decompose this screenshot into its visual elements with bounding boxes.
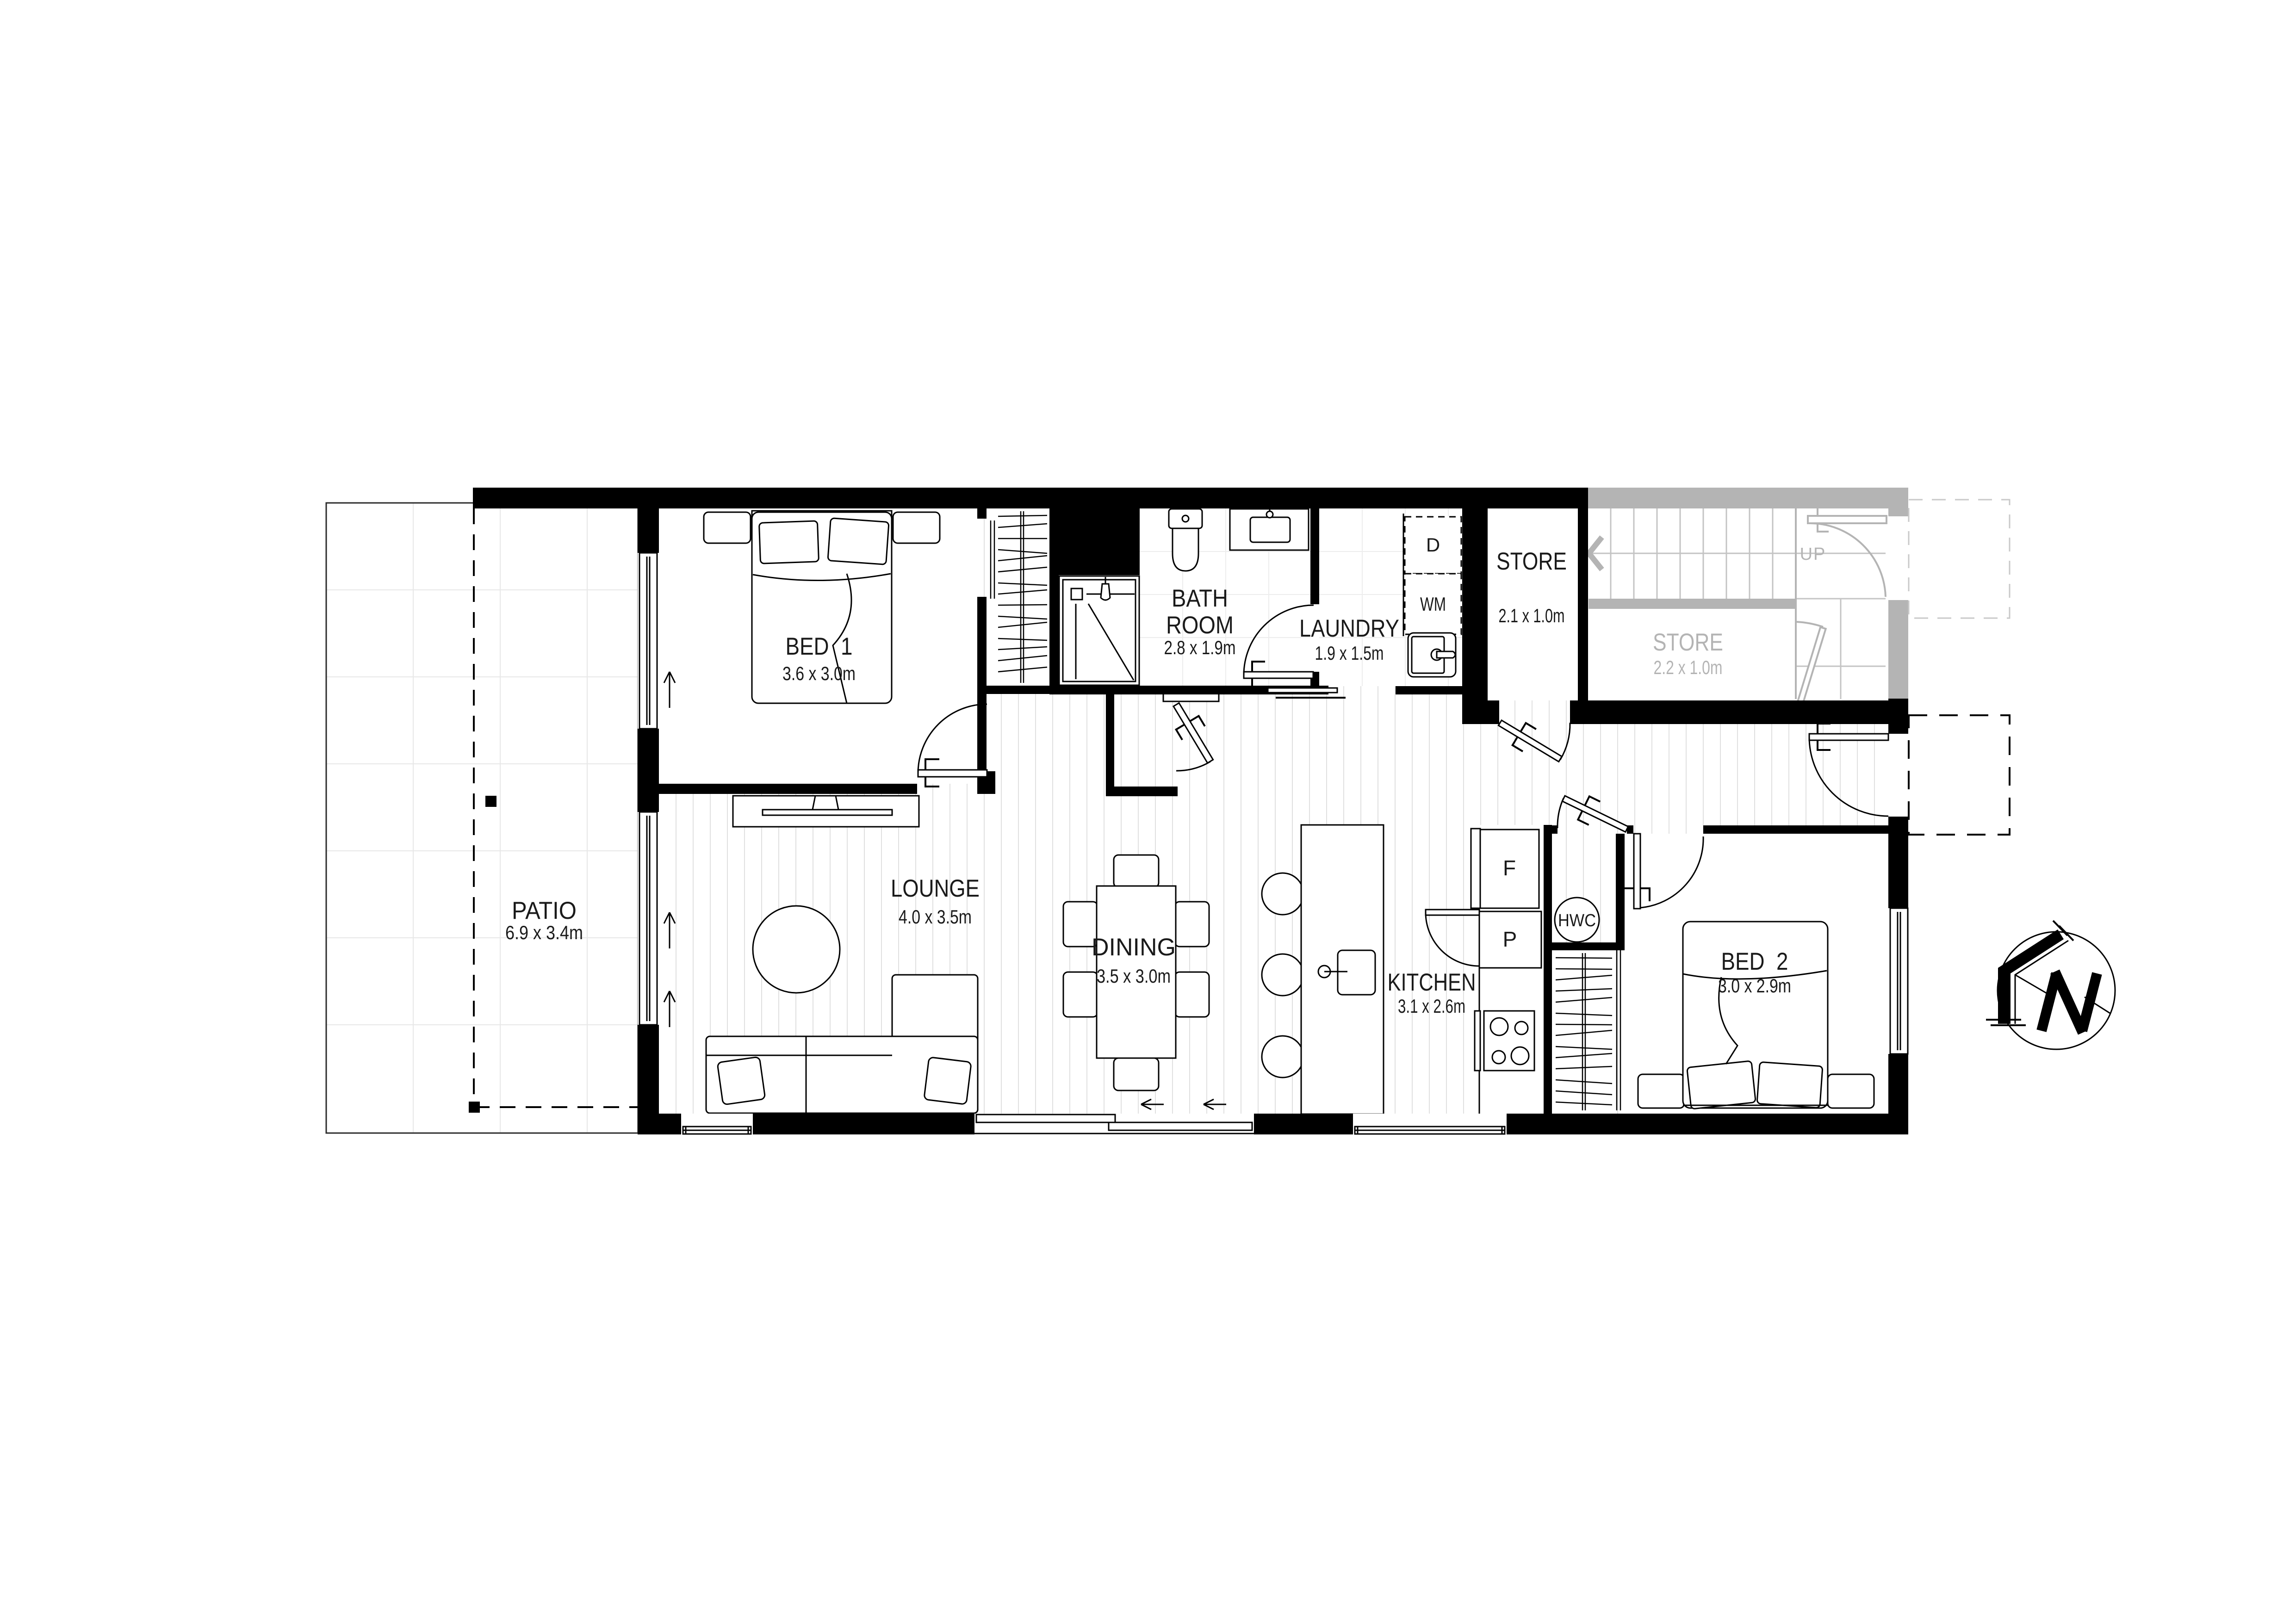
- svg-text:2.2 x 1.0m: 2.2 x 1.0m: [1654, 657, 1723, 678]
- svg-text:F: F: [1503, 856, 1516, 880]
- svg-text:6.9 x 3.4m: 6.9 x 3.4m: [505, 922, 583, 943]
- svg-text:2.1 x 1.0m: 2.1 x 1.0m: [1499, 605, 1565, 626]
- svg-text:3.1 x 2.6m: 3.1 x 2.6m: [1398, 995, 1465, 1017]
- svg-text:3.0 x 2.9m: 3.0 x 2.9m: [1718, 975, 1791, 997]
- svg-text:DINING: DINING: [1092, 934, 1176, 961]
- svg-text:LAUNDRY: LAUNDRY: [1299, 615, 1399, 642]
- svg-text:D: D: [1426, 534, 1440, 556]
- svg-text:ROOM: ROOM: [1166, 612, 1234, 639]
- svg-text:3.6 x 3.0m: 3.6 x 3.0m: [782, 663, 856, 684]
- svg-text:PATIO: PATIO: [512, 897, 577, 924]
- svg-text:HWC: HWC: [1558, 911, 1596, 930]
- svg-text:LOUNGE: LOUNGE: [891, 875, 980, 902]
- svg-text:BATH: BATH: [1172, 585, 1228, 612]
- svg-text:1.9 x 1.5m: 1.9 x 1.5m: [1315, 642, 1384, 664]
- svg-text:P: P: [1503, 927, 1517, 951]
- svg-text:BED 2: BED 2: [1721, 948, 1788, 975]
- svg-text:BED 1: BED 1: [786, 633, 853, 660]
- svg-text:4.0 x 3.5m: 4.0 x 3.5m: [899, 906, 972, 928]
- svg-text:2.8 x 1.9m: 2.8 x 1.9m: [1164, 637, 1236, 658]
- svg-text:KITCHEN: KITCHEN: [1388, 969, 1476, 996]
- svg-text:STORE: STORE: [1653, 629, 1723, 656]
- svg-text:STORE: STORE: [1496, 548, 1567, 575]
- svg-text:UP: UP: [1800, 545, 1826, 564]
- svg-text:3.5 x 3.0m: 3.5 x 3.0m: [1097, 965, 1171, 987]
- svg-text:WM: WM: [1420, 593, 1446, 615]
